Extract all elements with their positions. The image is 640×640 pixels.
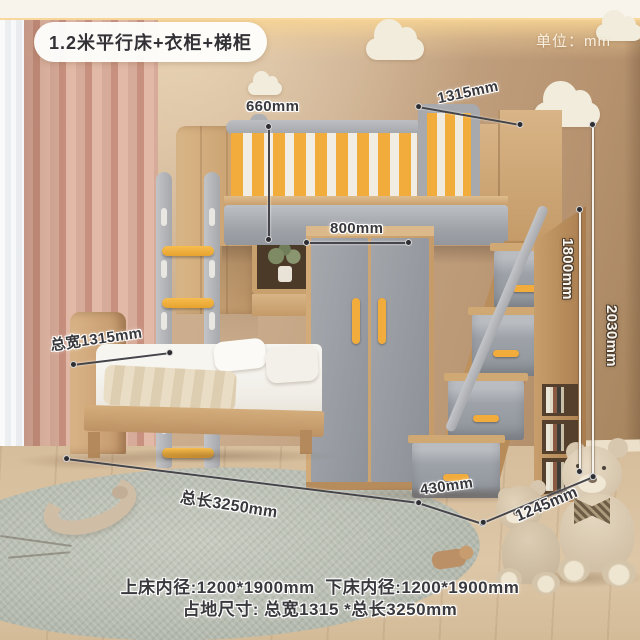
crescent-pillow-toy bbox=[112, 486, 128, 499]
inner-size-text: 上床内径:1200*1900mm 下床内径:1200*1900mm bbox=[0, 577, 640, 599]
dimension-line-660 bbox=[268, 126, 270, 240]
bear-eye bbox=[602, 466, 606, 470]
pillow bbox=[265, 344, 319, 384]
dimension-dot bbox=[589, 121, 596, 128]
dimension-line-1800 bbox=[579, 209, 581, 472]
wardrobe-handle bbox=[378, 298, 386, 344]
vase bbox=[278, 266, 292, 282]
bed-floor-shadow bbox=[78, 448, 342, 464]
cloud-decal-icon bbox=[248, 82, 282, 95]
dimension-label-cabinet-height: 1800mm bbox=[559, 238, 576, 300]
dimension-label-wardrobe-width: 800mm bbox=[330, 220, 383, 237]
ladder-rung bbox=[162, 298, 214, 308]
drawer-handle bbox=[493, 350, 519, 357]
dimension-dot bbox=[265, 123, 272, 130]
footprint-size-text: 占地尺寸: 总宽1315 *总长3250mm bbox=[0, 599, 640, 621]
dimension-dot bbox=[576, 206, 583, 213]
product-title-badge: 1.2米平行床+衣柜+梯柜 bbox=[34, 22, 267, 62]
blanket bbox=[103, 365, 237, 412]
ladder-rung bbox=[162, 246, 214, 256]
bookshelf-niche bbox=[542, 384, 578, 416]
dimension-line-800 bbox=[306, 242, 409, 244]
dimension-label-guardrail-height: 660mm bbox=[246, 98, 299, 115]
wall-corner-shadow bbox=[624, 40, 640, 460]
size-summary: 上床内径:1200*1900mm 下床内径:1200*1900mm 占地尺寸: … bbox=[0, 577, 640, 621]
drawer-handle bbox=[473, 415, 499, 422]
cloud-decal-icon bbox=[366, 38, 424, 60]
unit-note: 单位：mm bbox=[536, 30, 611, 51]
ceiling bbox=[0, 0, 640, 20]
shelf-niche-base bbox=[252, 294, 312, 316]
dimension-dot bbox=[303, 239, 310, 246]
guardrail-slats bbox=[231, 133, 417, 203]
dimension-dot bbox=[405, 239, 412, 246]
dimension-line-2030 bbox=[592, 124, 594, 477]
teddy-bear-icon bbox=[556, 438, 640, 590]
dimension-dot bbox=[576, 468, 583, 475]
pillow bbox=[213, 337, 268, 372]
dimension-label-total-height: 2030mm bbox=[603, 305, 620, 367]
dimension-dot bbox=[265, 236, 272, 243]
wardrobe-handle bbox=[352, 298, 360, 344]
product-dimension-image: 1.2米平行床+衣柜+梯柜 单位：mm 660mm 1315mm 800mm 1… bbox=[0, 0, 640, 640]
